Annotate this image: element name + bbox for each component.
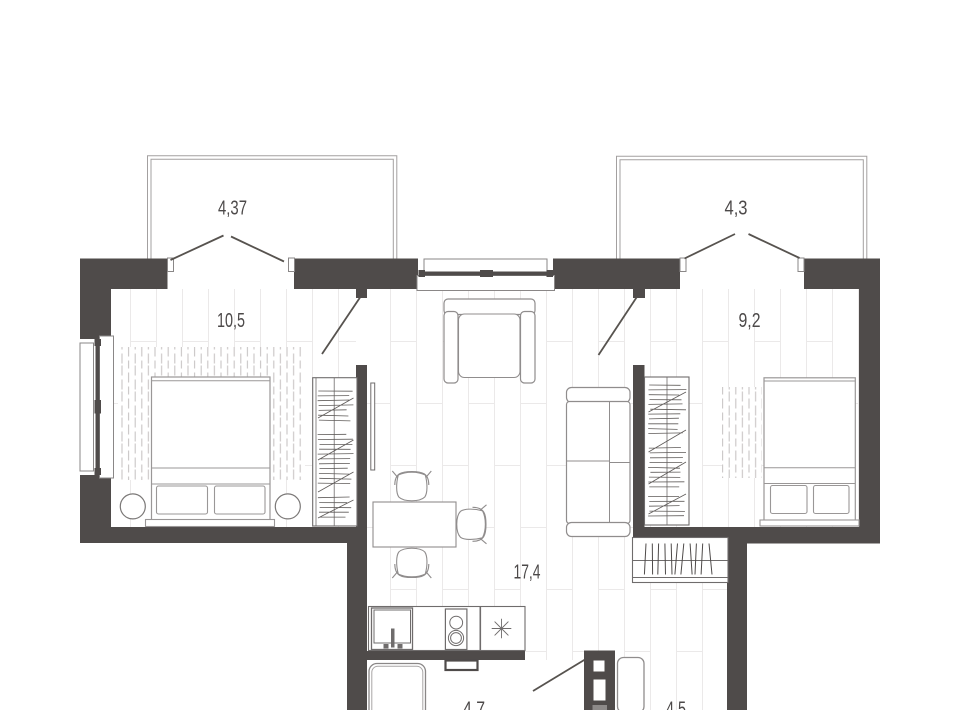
svg-text:9,2: 9,2 — [739, 310, 761, 332]
svg-text:4,3: 4,3 — [725, 198, 748, 220]
svg-text:17,4: 17,4 — [514, 562, 541, 584]
svg-text:4,7: 4,7 — [463, 699, 485, 710]
svg-text:4,37: 4,37 — [218, 198, 247, 220]
svg-text:10,5: 10,5 — [217, 310, 245, 332]
svg-text:4,5: 4,5 — [666, 699, 686, 710]
